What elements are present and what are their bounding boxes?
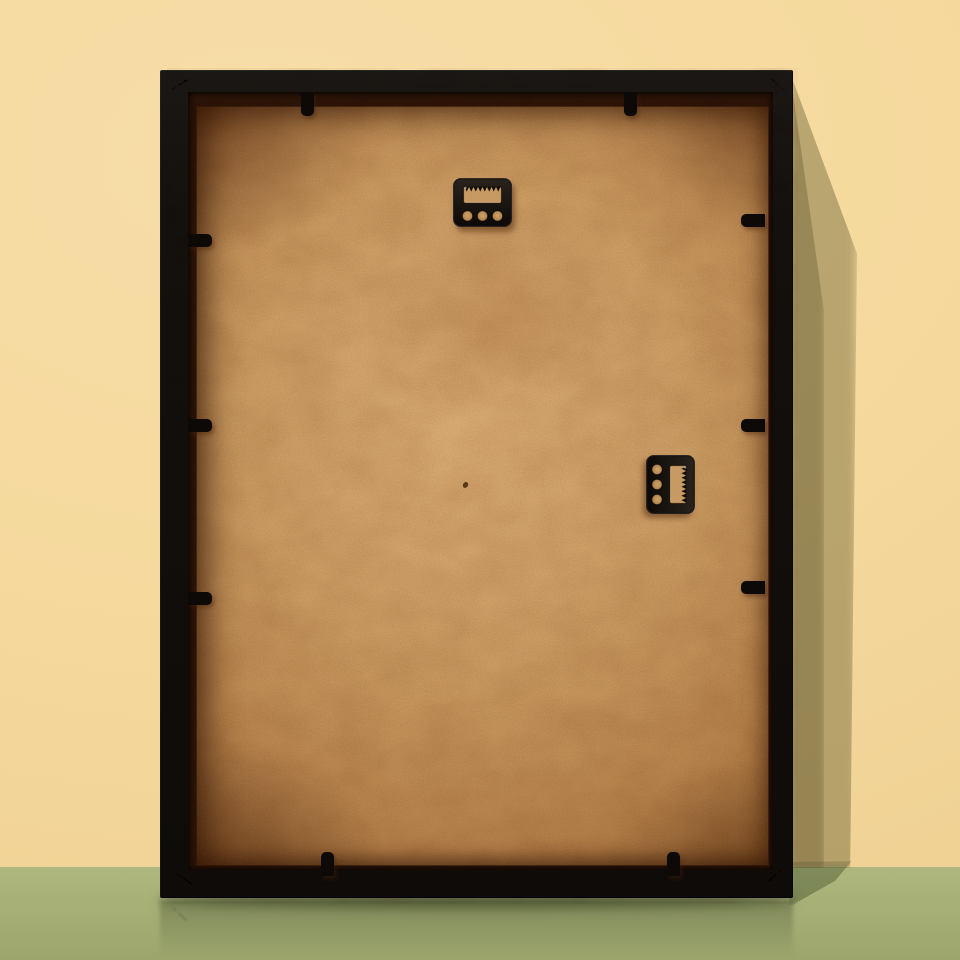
corner-joint-mark-bottom-right xyxy=(761,864,785,884)
corner-joint-mark-bottom-left xyxy=(174,867,200,889)
flexi-tab xyxy=(188,234,212,247)
flexi-tab xyxy=(667,852,680,876)
flexi-tab xyxy=(741,214,765,227)
flexi-tab xyxy=(188,592,212,605)
joint-mark-reflection xyxy=(170,903,194,923)
flexi-tab xyxy=(741,419,765,432)
frame-floor-reflection xyxy=(160,899,793,957)
flexi-tab xyxy=(321,852,334,876)
flexi-tab xyxy=(741,581,765,594)
corner-joint-mark-top-left xyxy=(169,74,196,97)
flexi-tab xyxy=(188,419,212,432)
picture-frame xyxy=(160,70,793,898)
corner-joint-mark-top-right xyxy=(764,76,788,96)
flexi-tab xyxy=(624,92,637,116)
sawtooth-hanger-top xyxy=(453,178,512,227)
flexi-tab xyxy=(301,92,314,116)
sawtooth-hanger-side xyxy=(646,455,695,514)
